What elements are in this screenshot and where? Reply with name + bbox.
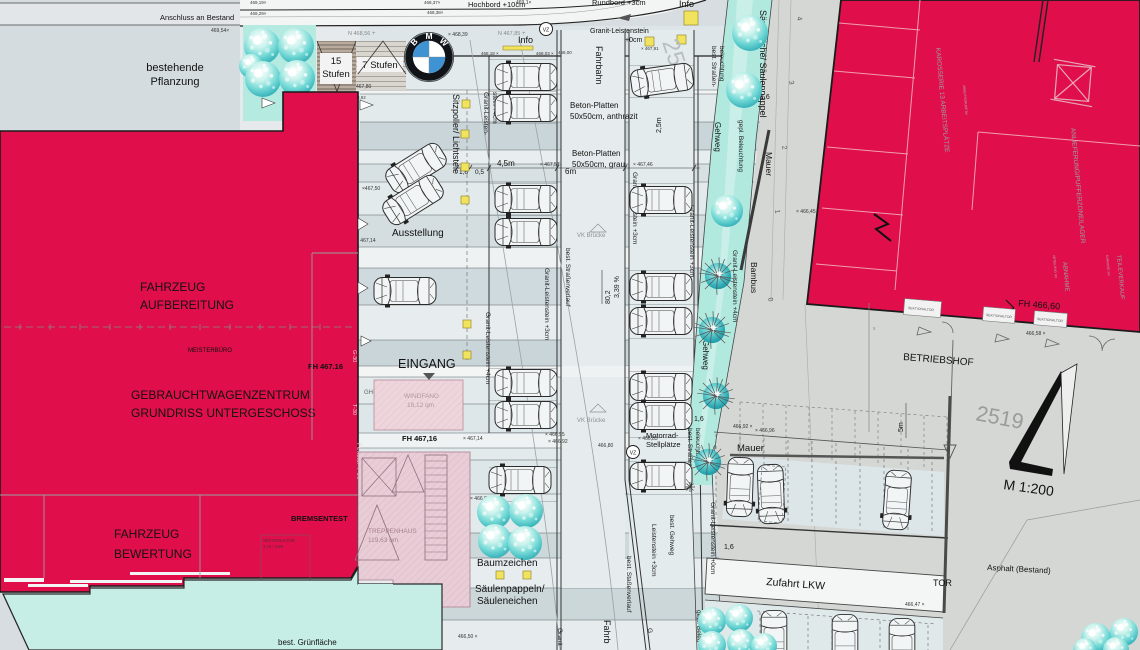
svg-text:VZ: VZ [630, 451, 636, 457]
svg-text:× 466,95: × 466,95 [545, 432, 565, 438]
svg-text:× 467,14: × 467,14 [356, 238, 376, 244]
svg-text:N 467,85: N 467,85 [498, 31, 520, 37]
svg-text:6m: 6m [565, 167, 576, 176]
svg-text:15: 15 [331, 56, 342, 67]
svg-text:2,5m: 2,5m [656, 117, 663, 133]
svg-text:× 467,91: × 467,91 [641, 46, 659, 51]
svg-text:468,00: 468,00 [558, 50, 572, 55]
svg-text:18,12 qm: 18,12 qm [407, 402, 434, 409]
svg-text:80,2: 80,2 [605, 290, 612, 304]
svg-text:Granit-Leistenstein +4cm: Granit-Leistenstein +4cm [484, 312, 491, 384]
svg-text:466,50 ×: 466,50 × [458, 634, 478, 640]
svg-text:Fahrbahn: Fahrbahn [594, 46, 604, 85]
svg-text:468,18 ×: 468,18 × [481, 51, 499, 56]
svg-text:× 468,39: × 468,39 [448, 32, 468, 38]
svg-text:Bambus: Bambus [749, 262, 759, 293]
svg-text:Sitzpoller/ Lichtstele: Sitzpoller/ Lichtstele [451, 94, 461, 174]
svg-text:TOR: TOR [933, 578, 952, 588]
svg-text:EINGANG: EINGANG [398, 357, 456, 371]
svg-text:Granit-Leisten-: Granit-Leisten- [482, 92, 489, 135]
svg-text:Info: Info [679, 0, 694, 9]
svg-text:AUFBEREITUNG: AUFBEREITUNG [140, 298, 234, 312]
svg-text:Baumzeichen: Baumzeichen [477, 558, 538, 569]
svg-text:Mauer: Mauer [764, 152, 774, 176]
svg-text:Granit-Leistenstein +0cm: Granit-Leistenstein +0cm [709, 502, 716, 574]
svg-text:469,54×: 469,54× [211, 28, 229, 34]
svg-text:× 466,92: × 466,92 [548, 439, 568, 445]
svg-text:FH 467.16: FH 467.16 [308, 362, 343, 371]
svg-text:×467,50: ×467,50 [362, 186, 380, 192]
svg-text:× 467,57: × 467,57 [540, 162, 560, 168]
svg-text:Granit-Leistenstein +4cm: Granit-Leistenstein +4cm [731, 250, 738, 322]
svg-text:+: + [372, 31, 376, 37]
svg-text:466,92 ×: 466,92 × [733, 424, 753, 430]
svg-text:4,5m: 4,5m [497, 159, 515, 168]
svg-text:469,1×: 469,1× [516, 0, 532, 6]
svg-text:Anschluss an Bestand: Anschluss an Bestand [160, 13, 234, 22]
svg-text:Ausstellung: Ausstellung [392, 228, 444, 239]
svg-text:TREPPENHAUS: TREPPENHAUS [368, 528, 417, 535]
svg-text:BEWERTUNG: BEWERTUNG [114, 547, 192, 561]
svg-text:469,19×: 469,19× [250, 0, 267, 5]
svg-text:Pflanzung: Pflanzung [151, 76, 200, 88]
svg-text:467,80: 467,80 [356, 84, 372, 90]
svg-text:N 468,56: N 468,56 [348, 31, 370, 37]
svg-text:50x50cm, grau: 50x50cm, grau [572, 160, 625, 169]
svg-text:Fahrb: Fahrb [602, 620, 612, 644]
svg-text:best. Straßen-: best. Straßen- [710, 46, 717, 87]
svg-text:Gehweg: Gehweg [713, 122, 722, 152]
svg-text:GRUNDRISS UNTERGESCHOSS: GRUNDRISS UNTERGESCHOSS [131, 406, 316, 420]
svg-text:1,6: 1,6 [760, 94, 770, 101]
svg-text:MEISTERBÜRO: MEISTERBÜRO [188, 347, 232, 354]
svg-text:3,75 / 3,59: 3,75 / 3,59 [263, 544, 283, 549]
svg-text:466,80: 466,80 [598, 443, 614, 449]
svg-text:best. Staßenverlauf: best. Staßenverlauf [625, 556, 632, 613]
svg-text:468,03 ×: 468,03 × [536, 51, 554, 56]
svg-text:beleuchtung: beleuchtung [718, 46, 725, 82]
svg-text:Leistenstein +3cm: Leistenstein +3cm [650, 524, 657, 577]
svg-text:3,39 %: 3,39 % [614, 276, 621, 298]
svg-text:× 467,46: × 467,46 [633, 162, 653, 168]
svg-text:FAHRZEUG: FAHRZEUG [140, 280, 205, 294]
svg-text:Granit-Leistenstein: Granit-Leistenstein [590, 28, 649, 35]
svg-text:gepl. Beleuchtung: gepl. Beleuchtung [737, 120, 744, 172]
svg-text:bestehende: bestehende [146, 62, 204, 74]
svg-text:468,37×: 468,37× [424, 0, 441, 5]
svg-text:G: G [646, 628, 653, 633]
svg-text:× 467,14: × 467,14 [463, 436, 483, 442]
svg-text:best. Grünfläche: best. Grünfläche [278, 638, 337, 647]
svg-text:× 466,96: × 466,96 [755, 428, 775, 434]
svg-text:× 466,45: × 466,45 [796, 209, 816, 215]
svg-text:+0cm: +0cm [625, 37, 642, 44]
svg-text:best. Gehweg: best. Gehweg [668, 515, 675, 555]
svg-text:0,5: 0,5 [475, 169, 484, 176]
svg-text:466,58 ×: 466,58 × [1026, 331, 1046, 337]
svg-text:Gehweg: Gehweg [701, 340, 710, 370]
svg-text:M: M [425, 31, 432, 41]
svg-text:Granit-Leistenstein +3cm: Granit-Leistenstein +3cm [543, 268, 550, 340]
svg-text:468,38×: 468,38× [427, 10, 444, 15]
svg-text:VK Brücke: VK Brücke [577, 418, 606, 424]
svg-text:466,47 ×: 466,47 × [905, 602, 925, 608]
svg-text:Granit: Granit [556, 628, 563, 646]
svg-text:119,63 qm: 119,63 qm [368, 537, 398, 544]
svg-text:WINDFANG: WINDFANG [404, 393, 439, 400]
svg-text:FAHRZEUG: FAHRZEUG [114, 527, 179, 541]
svg-text:BREMSENTEST: BREMSENTEST [291, 514, 348, 523]
svg-text:469,29×: 469,29× [250, 11, 267, 16]
svg-text:SEKTIONALTOR: SEKTIONALTOR [263, 538, 295, 543]
svg-text:Beton-Platten: Beton-Platten [570, 101, 618, 110]
svg-text:best. Straßenverlauf: best. Straßenverlauf [564, 248, 571, 307]
svg-text:FH 467,16: FH 467,16 [402, 434, 437, 443]
svg-text:50x50cm, anthrazit: 50x50cm, anthrazit [570, 112, 638, 121]
svg-text:Beton-Platten: Beton-Platten [572, 149, 620, 158]
svg-text:VZ: VZ [543, 28, 549, 34]
svg-text:T-30: T-30 [351, 404, 357, 415]
svg-text:GEBRAUCHTWAGENZENTRUM: GEBRAUCHTWAGENZENTRUM [131, 388, 310, 402]
svg-text:Säuleneichen: Säuleneichen [477, 596, 538, 607]
svg-text:Stufen: Stufen [322, 69, 349, 80]
svg-text:Mauer: Mauer [737, 443, 764, 454]
svg-text:Granit-Leistenstein +3cm: Granit-Leistenstein +3cm [688, 205, 695, 277]
svg-text:5m: 5m [898, 422, 905, 432]
svg-text:1,6: 1,6 [724, 544, 734, 551]
svg-text:VK Brücke: VK Brücke [577, 233, 606, 239]
svg-text:× 466,83: × 466,83 [638, 436, 658, 442]
svg-text:1,6: 1,6 [694, 416, 704, 423]
svg-text:Info: Info [518, 35, 533, 45]
svg-text:Rundbord +3cm: Rundbord +3cm [592, 0, 646, 7]
svg-text:Säulenpappeln/: Säulenpappeln/ [475, 584, 545, 595]
svg-text:G-30: G-30 [351, 350, 357, 362]
